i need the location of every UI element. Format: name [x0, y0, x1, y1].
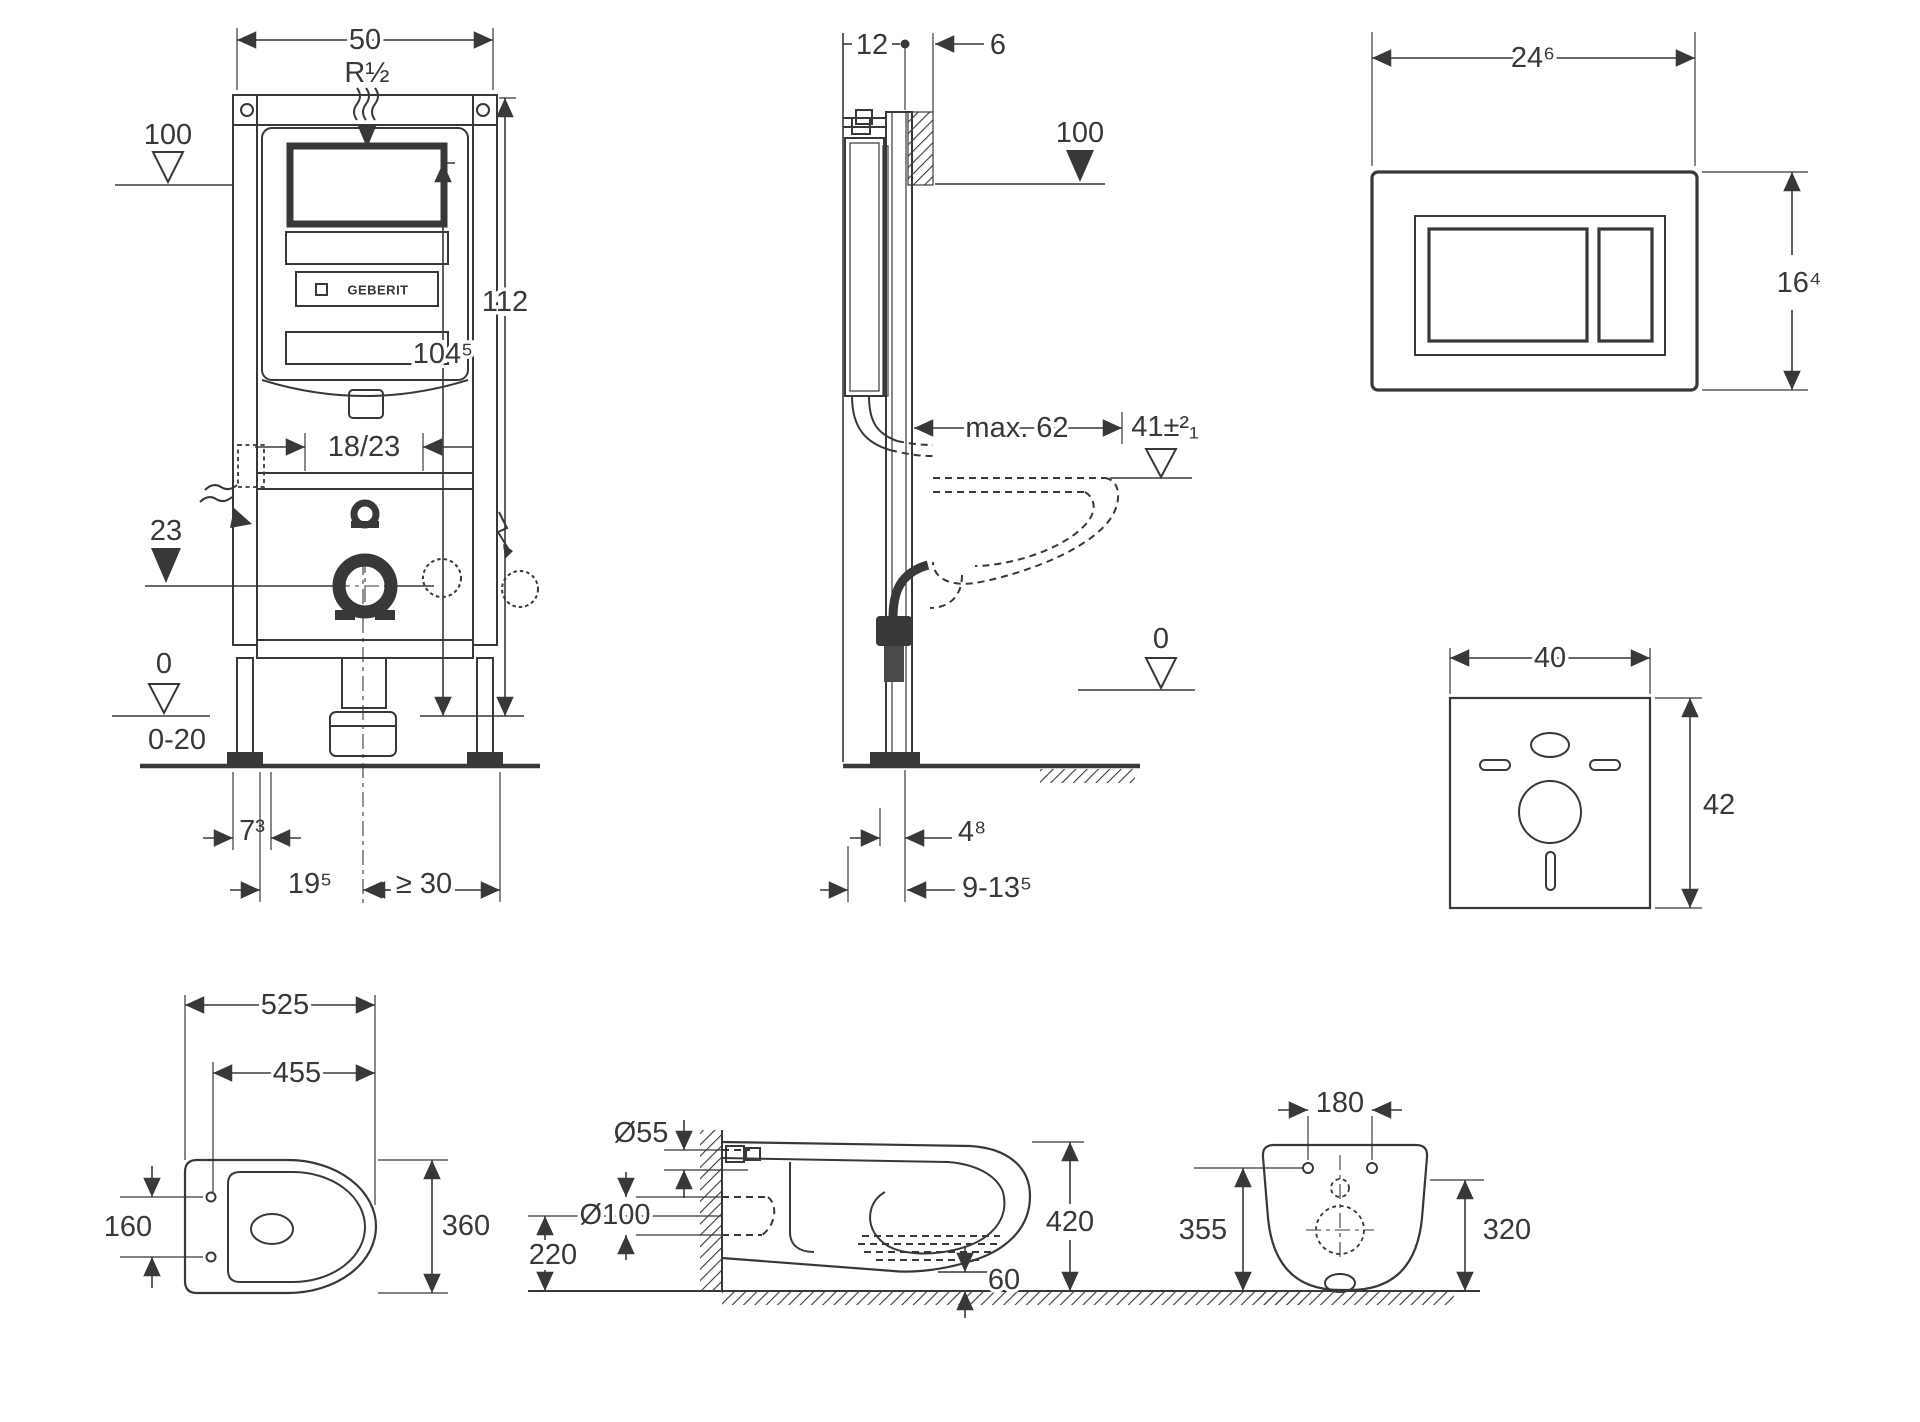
dim-label-73: 7³: [239, 815, 265, 847]
dim-label-355: 355: [1179, 1214, 1227, 1246]
technical-drawing-sheet: 50 R½ 100: [0, 0, 1920, 1422]
rail-profile: [843, 110, 920, 765]
dim-12: 12: [843, 29, 910, 110]
dim-label-42: 42: [1703, 789, 1735, 821]
dim-label-41: 41±²₁: [1131, 411, 1199, 443]
plate-button-large: [1429, 229, 1587, 341]
plate-button-small: [1599, 229, 1652, 341]
dim-label-50: 50: [349, 24, 381, 56]
insulation-hole-top: [1531, 733, 1569, 757]
fixing-hole-top: [207, 1193, 216, 1202]
flush-bend-clamp: [335, 558, 395, 620]
dim-label-max62: max. 62: [965, 412, 1068, 444]
level-mark-0: 0 0-20: [112, 648, 210, 756]
insulation-slot-right: [1590, 760, 1620, 770]
dim-label-40: 40: [1534, 642, 1566, 674]
dim-18-23: 18/23: [255, 431, 473, 471]
insulation-slot-bottom: [1546, 852, 1555, 890]
dim-label-o55: Ø55: [614, 1117, 669, 1149]
dim-180: 180: [1278, 1087, 1402, 1160]
level-mark-0-side: 0: [1078, 623, 1195, 690]
wc-top-view-figure: 525 455 160 360: [104, 989, 490, 1293]
frame-side-view-figure: 12 6 100: [820, 29, 1199, 904]
dim-label-48: 4⁸: [958, 816, 986, 848]
dim-355: 355: [1179, 1168, 1302, 1291]
dim-plate-height: 16⁴: [1702, 172, 1821, 390]
fixing-hole-bottom: [207, 1253, 216, 1262]
sound-insulation-figure: 40 42: [1450, 642, 1735, 908]
dim-insulation-width: 40: [1450, 642, 1650, 694]
heat-arrow-symbol: [200, 485, 252, 528]
dim-label-455: 455: [273, 1057, 321, 1089]
dim-9-135: 9-13⁵: [820, 846, 1032, 904]
dim-label-360: 360: [442, 1210, 490, 1242]
dim-41: 41±²₁: [1110, 411, 1199, 478]
floor-hatch-rear: [1258, 1292, 1454, 1305]
dim-label-112: 112: [482, 286, 528, 318]
dim-label-220: 220: [529, 1239, 577, 1271]
insulation-hole-center: [1519, 781, 1581, 843]
wall-hatch: [700, 1130, 722, 1292]
dim-label-420: 420: [1046, 1206, 1094, 1238]
dim-label-160: 160: [104, 1211, 152, 1243]
dim-label-0: 0: [156, 648, 172, 680]
supply-clamp: [351, 503, 379, 528]
geberit-logo: GEBERIT: [347, 283, 408, 298]
drain-bend: [876, 565, 928, 682]
dim-label-ge30: ≥ 30: [396, 868, 452, 900]
dim-160: 160: [104, 1166, 203, 1288]
cistern-front: GEBERIT: [262, 128, 468, 418]
bowl-inner-outline: [228, 1172, 365, 1282]
dim-label-525: 525: [261, 989, 309, 1021]
dim-320: 320: [1430, 1180, 1531, 1291]
dim-6: 6: [933, 29, 1006, 112]
dim-label-246: 24⁶: [1511, 42, 1555, 74]
dim-label-6: 6: [990, 29, 1006, 61]
dim-60: 60: [938, 1246, 1020, 1318]
wc-rear-view-figure: 180 355 320: [1179, 1087, 1531, 1305]
dim-plate-width: 24⁶: [1372, 32, 1695, 166]
insulation-slot-left: [1480, 760, 1510, 770]
dim-label-320: 320: [1483, 1214, 1531, 1246]
dim-label-164: 16⁴: [1777, 267, 1822, 299]
dim-label-23: 23: [150, 515, 182, 547]
dim-220: 220: [529, 1216, 577, 1291]
rear-outline: [1263, 1145, 1427, 1290]
dim-label-100: 100: [144, 119, 192, 151]
wall-finish-hatch: [908, 112, 933, 185]
level-mark-100-side: 100: [935, 117, 1105, 184]
drain-oval: [251, 1214, 293, 1244]
dim-label-100-side: 100: [1056, 117, 1104, 149]
dim-label-1045: 104⁵: [413, 338, 473, 370]
dim-label-60: 60: [988, 1264, 1020, 1296]
dim-label-195: 19⁵: [288, 868, 332, 900]
wc-side-body: [722, 1142, 1030, 1272]
drawing-svg: 50 R½ 100: [0, 0, 1920, 1422]
dim-label-o100: Ø100: [580, 1199, 651, 1231]
dim-label-0-side: 0: [1153, 623, 1169, 655]
dim-label-0-20: 0-20: [148, 724, 206, 756]
dim-max-62: max. 62: [914, 412, 1122, 444]
plate-inner-frame: [1415, 216, 1665, 355]
dim-label-180: 180: [1316, 1087, 1364, 1119]
wc-dashed-outline: [930, 478, 1118, 608]
dim-insulation-height: 42: [1655, 698, 1735, 908]
rear-hole-left: [1303, 1163, 1313, 1173]
dim-360: 360: [378, 1160, 490, 1293]
detail-dashed-box: [238, 445, 264, 487]
floor-hatch: [1040, 769, 1135, 783]
dim-7-3: 7³: [203, 772, 301, 850]
dim-label-r12: R½: [344, 57, 389, 89]
dim-label-18-23: 18/23: [328, 431, 401, 463]
frame-front-view-figure: 50 R½ 100: [112, 24, 540, 905]
detail-circle-left: [423, 559, 461, 597]
dim-label-12: 12: [856, 29, 888, 61]
rear-hole-right: [1367, 1163, 1377, 1173]
plate-outline: [1372, 172, 1697, 390]
level-mark-100: 100: [115, 119, 233, 185]
flush-plate-figure: 24⁶ 16⁴: [1372, 32, 1821, 390]
detail-circle-right: [502, 571, 538, 607]
dim-height-112: 112: [482, 98, 528, 716]
dim-420: 420: [1032, 1142, 1094, 1291]
dim-label-9135: 9-13⁵: [962, 872, 1032, 904]
bowl-outer-outline: [185, 1160, 376, 1293]
insulation-mat-outline: [1450, 698, 1650, 908]
dim-ge-30: ≥ 30: [366, 772, 500, 902]
